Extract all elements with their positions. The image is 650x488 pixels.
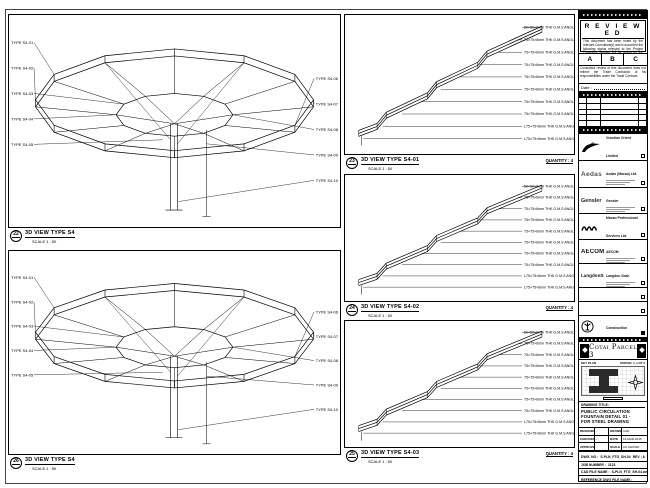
company-box-aedas: Aedas Aedas (Macau) Ltd. [579, 161, 647, 188]
dwg-number-row: DWG. NO : S-PLN_FTG_SH-04 REV : A [579, 452, 647, 462]
grade-c: C [624, 54, 647, 65]
address-placeholder [606, 180, 640, 185]
svg-text:75×75×6mm THK G.M.S ANGLE: 75×75×6mm THK G.M.S ANGLE [524, 196, 574, 200]
svg-text:TYPE S4-10: TYPE S4-10 [316, 178, 339, 183]
company-box-professional-services: Macau Professional Services Ltd. [579, 214, 647, 240]
company-checkbox [641, 309, 645, 313]
svg-text:TYPE S4-02: TYPE S4-02 [11, 299, 34, 304]
parcel-label: PARCEL 1, LOT 2 [620, 361, 645, 365]
svg-text:TYPE S4-03: TYPE S4-03 [11, 324, 34, 329]
wireframe [35, 49, 313, 216]
svg-text:75×75×6mm THK G.M.S ANGLE: 75×75×6mm THK G.M.S ANGLE [524, 398, 574, 402]
company-checkbox [641, 154, 645, 158]
viewport-label-left-top: 22 3D VIEW TYPE S4 SCALE 1 : 50 [8, 229, 341, 248]
quantity-label: QUANTITY : 4 [546, 305, 573, 311]
view-title: 3D VIEW TYPE S4-03 [361, 450, 419, 458]
detail-bubble: 25 [346, 450, 358, 462]
svg-text:TYPE S4-02: TYPE S4-02 [11, 66, 34, 71]
building-footprint-top [589, 369, 618, 376]
detail-bubble: 26 [10, 457, 22, 469]
langdon-seah-logo: LangdonSeah [581, 273, 604, 278]
project-banner: Cotai Parcel 3 [579, 342, 647, 360]
detail-bubble: 23 [346, 157, 358, 169]
svg-text:50×50×6mm THK G.M.S ANGLE: 50×50×6mm THK G.M.S ANGLE [524, 331, 574, 335]
view-title: 3D VIEW TYPE S4-01 [361, 157, 419, 165]
review-stamp: R E V I E W E D This document has been n… [579, 19, 647, 54]
svg-text:TYPE S4-05: TYPE S4-05 [11, 142, 34, 147]
triple-arch-logo-icon [581, 223, 604, 231]
date-label: Date : [581, 85, 592, 90]
svg-text:L75×75×6mm THK G.M.S ANGLE: L75×75×6mm THK G.M.S ANGLE [524, 125, 574, 129]
leader-annotations: TYPE S4-01TYPE S4-02TYPE S4-03TYPE S4-04… [11, 40, 339, 202]
company-checkbox [641, 233, 645, 237]
company-checkbox [641, 281, 645, 285]
leader-annotations: 50×50×6mm THK G.M.S ANGLE75×75×6mm THK G… [363, 331, 574, 436]
quantity-label: QUANTITY : 4 [546, 158, 573, 164]
svg-text:L75×75×6mm THK G.M.S ANGLE: L75×75×6mm THK G.M.S ANGLE [524, 420, 574, 424]
svg-text:75×75×6mm THK G.M.S ANGLE: 75×75×6mm THK G.M.S ANGLE [524, 75, 574, 79]
company-box-empty-2 [579, 302, 647, 316]
svg-text:75×75×6mm THK G.M.S ANGLE: 75×75×6mm THK G.M.S ANGLE [524, 50, 574, 54]
svg-text:TYPE S4-08: TYPE S4-08 [316, 127, 339, 132]
svg-text:TYPE S4-09: TYPE S4-09 [316, 152, 339, 157]
gensler-logo: Gensler [581, 198, 604, 204]
svg-text:75×75×6mm THK G.M.S ANGLE: 75×75×6mm THK G.M.S ANGLE [524, 218, 574, 222]
fields-grid: DESIGNED - DRAWN CAD CHECKED - DATE 14-M… [579, 428, 647, 452]
address-placeholder [606, 207, 640, 212]
date-value: 14-MAR-2016 [622, 436, 647, 444]
view-title: 3D VIEW TYPE S4-02 [361, 304, 419, 312]
svg-text:75×75×6mm THK G.M.S ANGLE: 75×75×6mm THK G.M.S ANGLE [524, 364, 574, 368]
project-name: Cotai Parcel 3 [589, 343, 637, 359]
drawing-title-box: DRAWING TITLE: PUBLIC CIRCULATION FOUNTA… [579, 402, 647, 428]
svg-text:75×75×6mm THK G.M.S ANGLE: 75×75×6mm THK G.M.S ANGLE [524, 353, 574, 357]
svg-text:TYPE S4-10: TYPE S4-10 [316, 407, 339, 412]
aecom-logo: AECOM [581, 249, 604, 255]
svg-text:TYPE S4-07: TYPE S4-07 [316, 334, 339, 339]
grade-b: B [602, 54, 625, 65]
wireframe [359, 26, 542, 145]
svg-text:TYPE S4-06: TYPE S4-06 [316, 309, 339, 314]
svg-text:L75×75×6mm THK G.M.S ANGLE: L75×75×6mm THK G.M.S ANGLE [524, 137, 574, 141]
svg-text:TYPE S4-04: TYPE S4-04 [11, 348, 34, 353]
viewport-3d-type-s4-01: 50×50×6mm THK G.M.S ANGLE75×75×6mm THK G… [344, 14, 575, 155]
viewport-label-s4-03: 25 3D VIEW TYPE S4-03 SCALE 1 : 50 QUANT… [344, 449, 575, 466]
svg-text:75×75×6mm THK G.M.S ANGLE: 75×75×6mm THK G.M.S ANGLE [524, 387, 574, 391]
title-block: R E V I E W E D This document has been n… [578, 10, 648, 482]
viewport-label-s4-02: 24 3D VIEW TYPE S4-02 SCALE 1 : 50 QUANT… [344, 303, 575, 319]
svg-text:75×75×6mm THK G.M.S ANGLE: 75×75×6mm THK G.M.S ANGLE [524, 112, 574, 116]
company-box-empty-1 [579, 288, 647, 302]
svg-text:75×75×6mm THK G.M.S ANGLE: 75×75×6mm THK G.M.S ANGLE [524, 229, 574, 233]
approved-value: - [595, 443, 609, 451]
wireframe-angle-assembly: 50×50×6mm THK G.M.S ANGLE75×75×6mm THK G… [345, 321, 574, 447]
building-footprint-bottom [589, 386, 618, 393]
viewport-3d-type-s4-top: TYPE S4-01TYPE S4-02TYPE S4-03TYPE S4-04… [8, 14, 341, 228]
svg-text:75×75×6mm THK G.M.S ANGLE: 75×75×6mm THK G.M.S ANGLE [524, 241, 574, 245]
key-plan: KEY PLAN PARCEL 1, LOT 2 [579, 360, 647, 402]
designed-value: - [595, 428, 609, 436]
scale-value: AS SHOWN [622, 443, 647, 451]
svg-text:75×75×6mm THK G.M.S ANGLE: 75×75×6mm THK G.M.S ANGLE [524, 409, 574, 413]
detail-bubble: 22 [10, 230, 22, 242]
review-grade-row: A B C [579, 54, 647, 66]
svg-text:TYPE S4-05: TYPE S4-05 [11, 372, 34, 377]
date-fill-line [594, 85, 645, 89]
wireframe-umbrella-structure: TYPE S4-01TYPE S4-02TYPE S4-03TYPE S4-04… [9, 15, 340, 227]
aedas-logo: Aedas [581, 171, 604, 178]
wireframe [359, 331, 542, 441]
drawing-title-line3: FOR STEEL DRAWING [581, 419, 645, 424]
revision-table-rows [579, 98, 647, 127]
svg-text:TYPE S4-08: TYPE S4-08 [316, 358, 339, 363]
cad-file-row: CAD FILE NAME : S-PLN_FTG_SH-04.dwg [579, 469, 647, 476]
company-box-hsin-chong: Hsin Chong Construction (Macau) Co., Ltd… [579, 316, 647, 338]
review-date-row: Date : [579, 84, 647, 92]
leader-annotations: TYPE S4-01TYPE S4-02TYPE S4-03TYPE S4-04… [11, 275, 339, 430]
drawn-value: CAD [622, 428, 647, 436]
review-note: Consultant review of this document does … [579, 66, 647, 84]
viewport-label-left-bottom: 26 3D VIEW TYPE S4 SCALE 1 : 50 [8, 456, 341, 475]
revision-table [579, 92, 647, 134]
viewport-3d-type-s4-02: 50×50×6mm THK G.M.S ANGLE75×75×6mm THK G… [344, 174, 575, 302]
view-scale: SCALE 1 : 50 [361, 312, 419, 318]
svg-text:TYPE S4-04: TYPE S4-04 [11, 116, 34, 121]
address-placeholder [606, 282, 640, 287]
svg-text:75×75×6mm THK G.M.S ANGLE: 75×75×6mm THK G.M.S ANGLE [524, 342, 574, 346]
wireframe-angle-assembly: 50×50×6mm THK G.M.S ANGLE75×75×6mm THK G… [345, 175, 574, 301]
banner-ornament-right [637, 344, 646, 358]
key-plan-map [581, 366, 645, 396]
key-plan-scale-box [603, 397, 623, 400]
svg-text:75×75×6mm THK G.M.S ANGLE: 75×75×6mm THK G.M.S ANGLE [524, 263, 574, 267]
compass-rose-icon [628, 375, 643, 390]
reference-dwg-row: REFERENCE DWG FILE NAME : [579, 476, 647, 483]
banner-ornament-left [580, 344, 589, 358]
key-plan-label: KEY PLAN [581, 361, 596, 365]
wireframe [359, 185, 542, 295]
view-title: 3D VIEW TYPE S4 [25, 230, 75, 238]
company-checkbox [641, 295, 645, 299]
svg-text:75×75×6mm THK G.M.S ANGLE: 75×75×6mm THK G.M.S ANGLE [524, 252, 574, 256]
leader-annotations: 50×50×6mm THK G.M.S ANGLE75×75×6mm THK G… [363, 185, 574, 290]
svg-text:TYPE S4-07: TYPE S4-07 [316, 102, 339, 107]
svg-text:L75×75×6mm THK G.M.S ANGLE: L75×75×6mm THK G.M.S ANGLE [524, 431, 574, 435]
svg-text:L75×75×6mm THK G.M.S ANGLE: L75×75×6mm THK G.M.S ANGLE [524, 285, 574, 289]
venetian-lion-icon [581, 142, 604, 153]
company-box-langdon-seah: LangdonSeah Langdon Seah [579, 264, 647, 288]
company-checkbox-checked [641, 331, 645, 335]
viewport-3d-type-s4-03: 50×50×6mm THK G.M.S ANGLE75×75×6mm THK G… [344, 320, 575, 448]
company-checkbox [641, 181, 645, 185]
grade-a: A [579, 54, 602, 65]
reviewed-body: This document has been noted by the rele… [582, 39, 644, 54]
address-placeholder [606, 258, 640, 263]
job-number: 2123 [608, 463, 616, 467]
checked-value: - [595, 436, 609, 444]
svg-text:50×50×6mm THK G.M.S ANGLE: 50×50×6mm THK G.M.S ANGLE [524, 26, 574, 30]
view-scale: SCALE 1 : 50 [361, 165, 419, 171]
svg-text:TYPE S4-09: TYPE S4-09 [316, 382, 339, 387]
svg-text:75×75×6mm THK G.M.S ANGLE: 75×75×6mm THK G.M.S ANGLE [524, 207, 574, 211]
company-checkbox [641, 257, 645, 261]
reviewed-title: R E V I E W E D [582, 22, 644, 39]
svg-text:75×75×6mm THK G.M.S ANGLE: 75×75×6mm THK G.M.S ANGLE [524, 38, 574, 42]
view-scale: SCALE 1 : 50 [25, 465, 75, 471]
svg-text:75×75×6mm THK G.M.S ANGLE: 75×75×6mm THK G.M.S ANGLE [524, 375, 574, 379]
cad-file-name: S-PLN_FTG_SH-04.dwg [612, 470, 647, 474]
company-checkbox [641, 207, 645, 211]
svg-text:TYPE S4-01: TYPE S4-01 [11, 275, 34, 280]
drawing-sheet: TYPE S4-01TYPE S4-02TYPE S4-03TYPE S4-04… [0, 0, 650, 488]
wireframe [35, 283, 313, 443]
svg-text:75×75×6mm THK G.M.S ANGLE: 75×75×6mm THK G.M.S ANGLE [524, 87, 574, 91]
company-box-venetian: Venetian Orient Limited [579, 134, 647, 161]
view-scale: SCALE 1 : 50 [25, 238, 75, 244]
revision-table-footer [579, 127, 647, 133]
header-microtext-strip [579, 11, 647, 19]
viewport-label-s4-01: 23 3D VIEW TYPE S4-01 SCALE 1 : 50 QUANT… [344, 156, 575, 173]
dwg-number: S-PLN_FTG_SH-04 [600, 455, 630, 459]
svg-text:TYPE S4-03: TYPE S4-03 [11, 91, 34, 96]
company-box-aecom: AECOM AECOM [579, 240, 647, 264]
svg-text:50×50×6mm THK G.M.S ANGLE: 50×50×6mm THK G.M.S ANGLE [524, 185, 574, 189]
svg-text:75×75×6mm THK G.M.S ANGLE: 75×75×6mm THK G.M.S ANGLE [524, 100, 574, 104]
viewport-3d-type-s4-bottom: TYPE S4-01TYPE S4-02TYPE S4-03TYPE S4-04… [8, 250, 341, 455]
quantity-label: QUANTITY : 4 [546, 451, 573, 457]
job-number-row: JOB NUMBER : 2123 [579, 462, 647, 469]
view-scale: SCALE 1 : 50 [361, 458, 419, 464]
company-box-gensler: Gensler Gensler [579, 188, 647, 214]
building-footprint-stem [599, 376, 609, 386]
svg-text:L75×75×6mm THK G.M.S ANGLE: L75×75×6mm THK G.M.S ANGLE [524, 274, 574, 278]
leader-annotations: 50×50×6mm THK G.M.S ANGLE75×75×6mm THK G… [363, 26, 574, 141]
svg-text:75×75×6mm THK G.M.S ANGLE: 75×75×6mm THK G.M.S ANGLE [524, 63, 574, 67]
wireframe-umbrella-structure: TYPE S4-01TYPE S4-02TYPE S4-03TYPE S4-04… [9, 251, 340, 454]
rev-value: REV : A [633, 455, 645, 459]
hsin-chong-emblem-icon [581, 320, 604, 333]
svg-text:TYPE S4-01: TYPE S4-01 [11, 40, 34, 45]
svg-text:TYPE S4-06: TYPE S4-06 [316, 76, 339, 81]
detail-bubble: 24 [346, 304, 358, 316]
wireframe-angle-assembly: 50×50×6mm THK G.M.S ANGLE75×75×6mm THK G… [345, 15, 574, 154]
view-title: 3D VIEW TYPE S4 [25, 457, 75, 465]
